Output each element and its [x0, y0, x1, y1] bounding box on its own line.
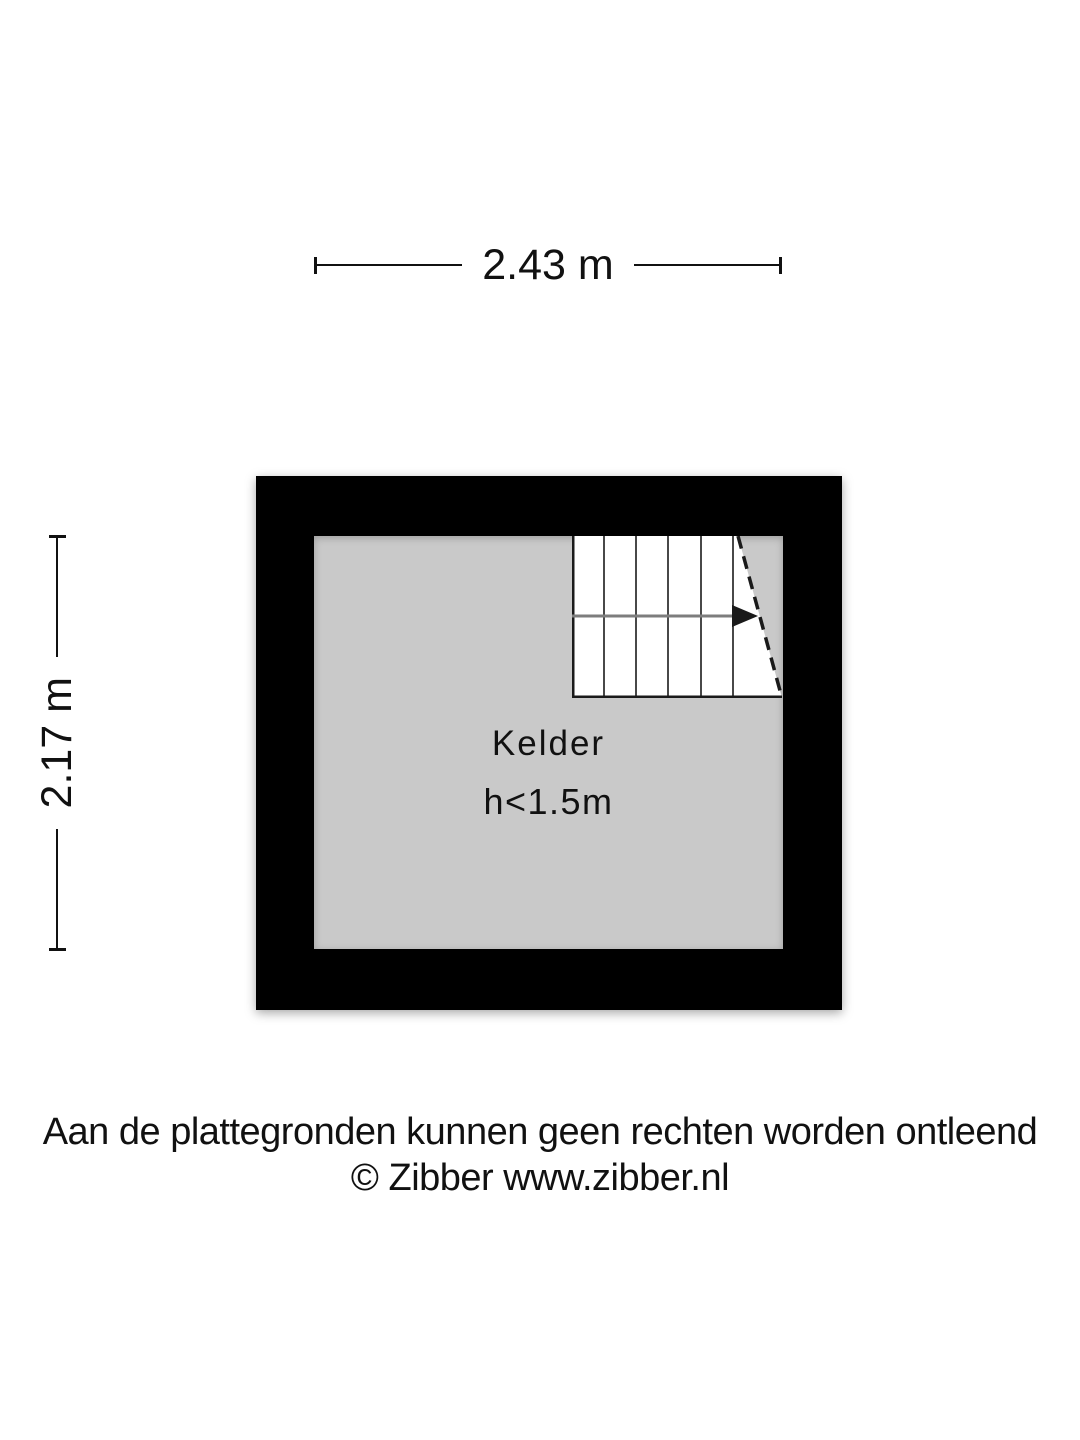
height-dimension-line: 2.17 m [35, 535, 79, 951]
height-dimension-label: 2.17 m [35, 657, 79, 828]
dimension-segment [56, 538, 59, 657]
dimension-segment [56, 829, 59, 948]
footer-copyright: © Zibber www.zibber.nl [0, 1156, 1080, 1200]
width-dimension-label: 2.43 m [462, 243, 633, 287]
dimension-tick-right [779, 257, 782, 274]
floorplan-walls: Kelder h<1.5m [256, 476, 842, 1010]
dimension-tick-bottom [49, 948, 66, 951]
room-name-label: Kelder [314, 726, 783, 762]
width-dimension-line: 2.43 m [314, 243, 782, 287]
dimension-segment [634, 264, 779, 267]
staircase [572, 536, 783, 699]
room-height-note: h<1.5m [314, 783, 783, 821]
basement-floor: Kelder h<1.5m [314, 536, 783, 949]
dimension-segment [317, 264, 462, 267]
footer-disclaimer: Aan de plattegronden kunnen geen rechten… [0, 1110, 1080, 1154]
